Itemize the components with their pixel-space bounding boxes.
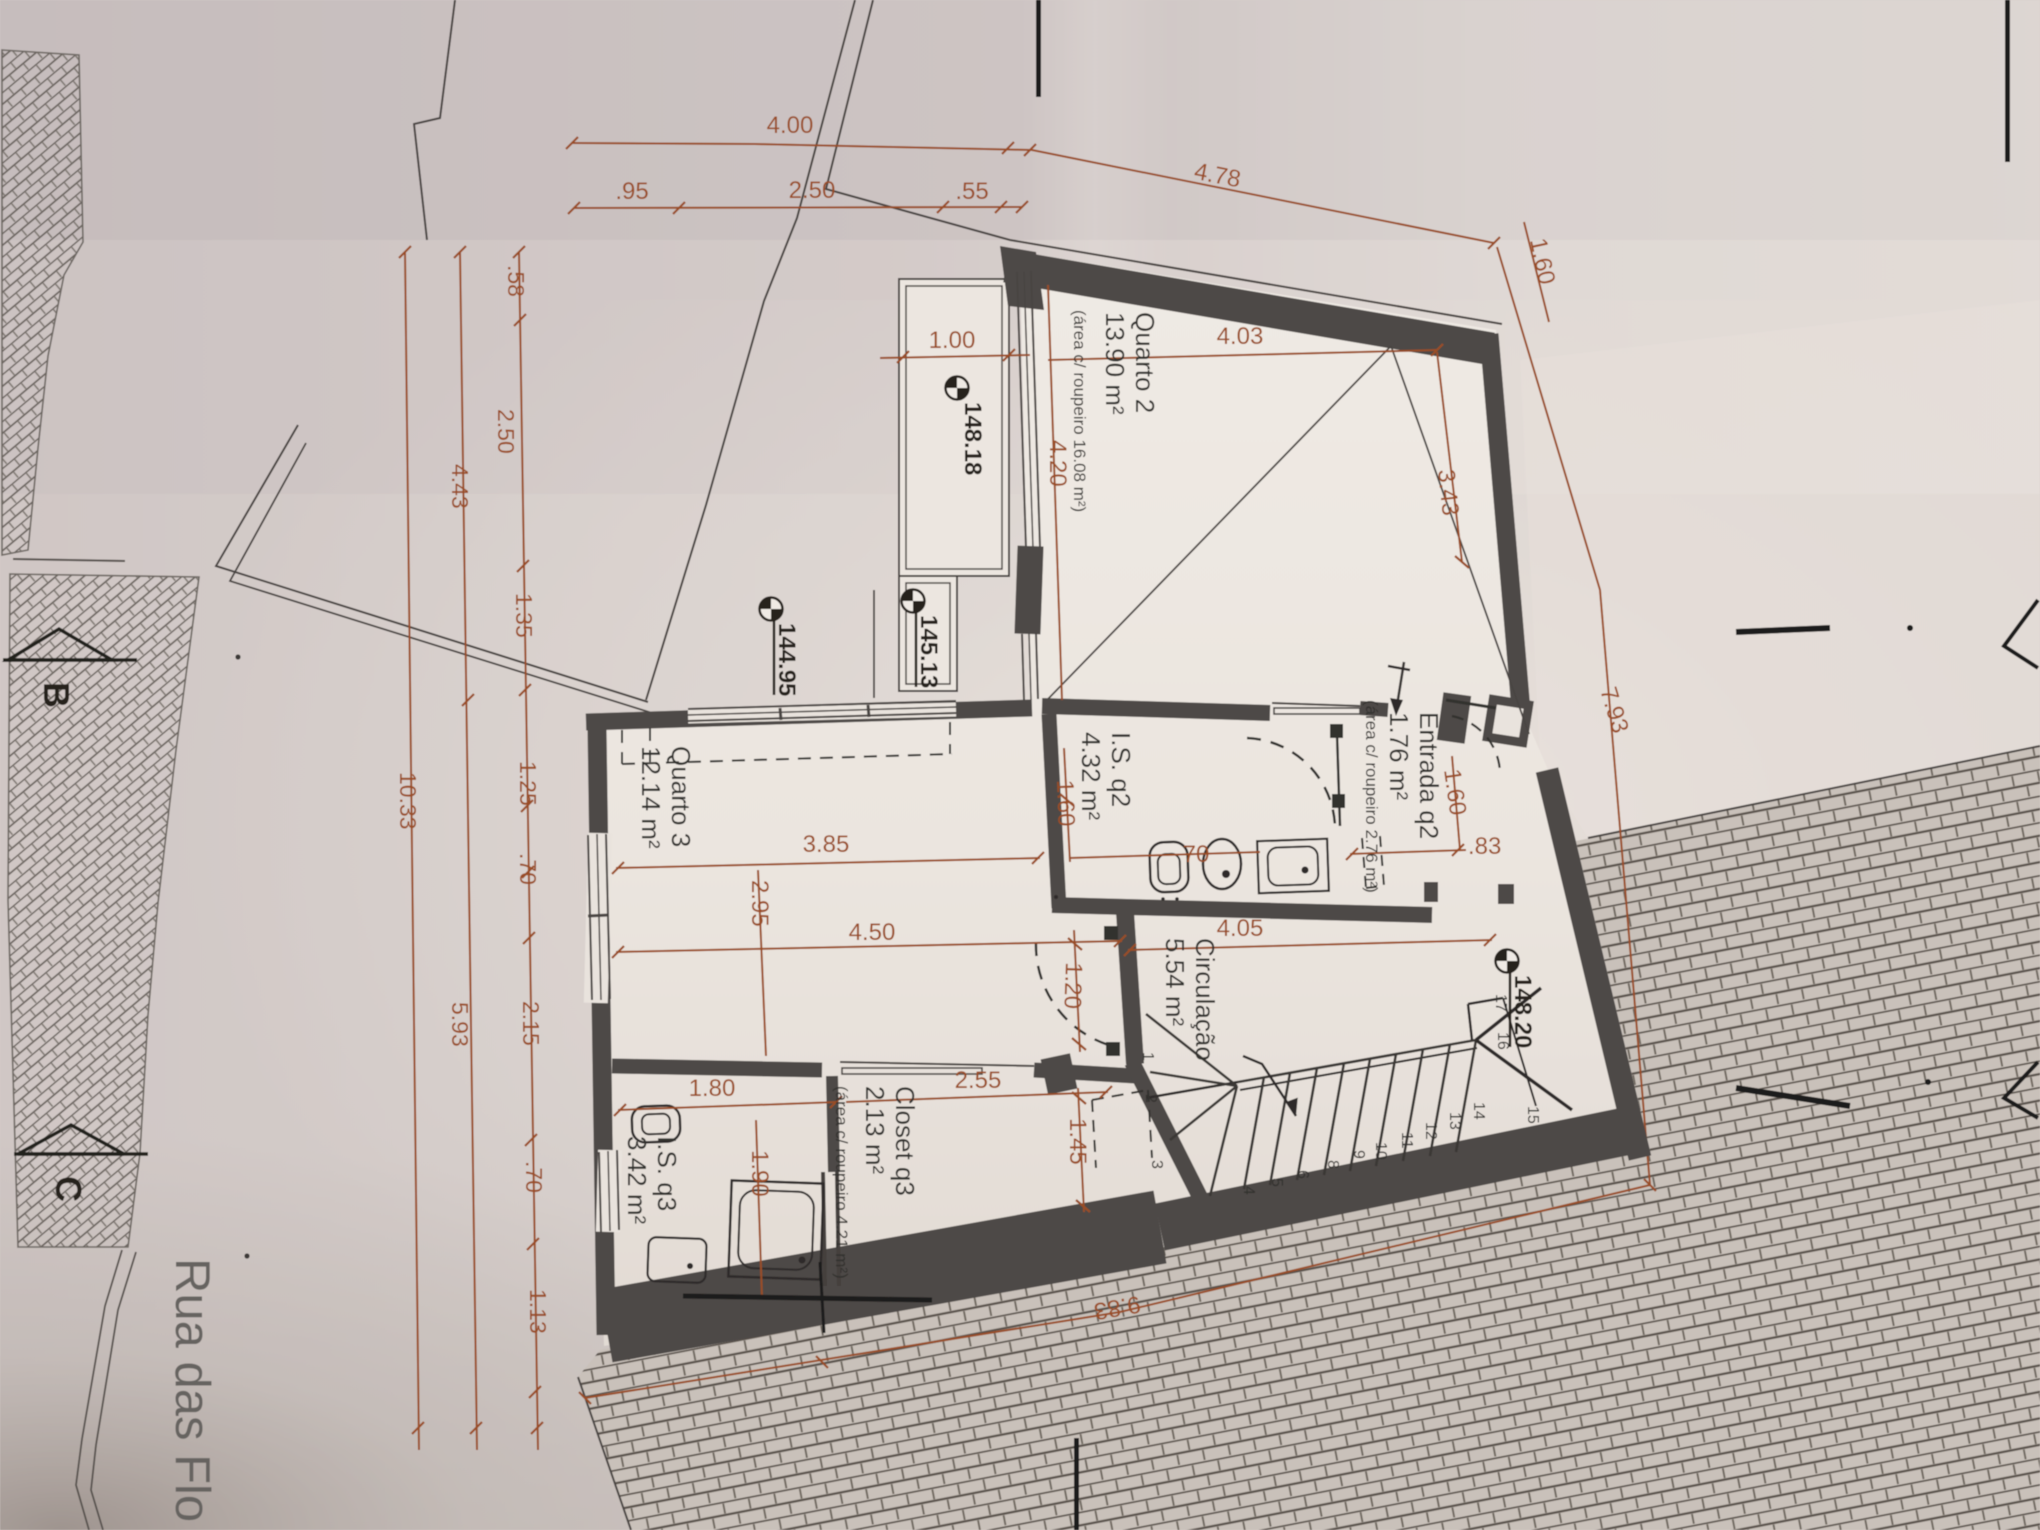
svg-text:148.18: 148.18 [959, 402, 986, 475]
svg-text:(área c/ roupeiro 2.76 m²): (área c/ roupeiro 2.76 m²) [1362, 700, 1381, 893]
svg-text:4.32 m²: 4.32 m² [1076, 732, 1106, 820]
svg-text:1.00: 1.00 [929, 327, 976, 354]
svg-text:1.45: 1.45 [1064, 1118, 1091, 1165]
svg-text:13: 13 [1446, 1112, 1463, 1130]
svg-text:4: 4 [1240, 1186, 1257, 1195]
svg-text:10.33: 10.33 [395, 772, 421, 830]
svg-text:Entrada q2: Entrada q2 [1414, 712, 1444, 839]
svg-text:2.15: 2.15 [518, 1001, 544, 1046]
svg-text:2.95: 2.95 [746, 880, 773, 927]
svg-text:3.42 m²: 3.42 m² [622, 1136, 652, 1224]
svg-text:70: 70 [1183, 841, 1210, 868]
svg-text:3.43: 3.43 [1432, 468, 1464, 517]
svg-text:.70: .70 [515, 853, 541, 885]
svg-text:3: 3 [1148, 1160, 1165, 1169]
svg-text:9: 9 [1350, 1150, 1367, 1159]
svg-text:2: 2 [1142, 1094, 1159, 1103]
svg-text:1.25: 1.25 [515, 761, 541, 806]
svg-text:10: 10 [1372, 1142, 1389, 1160]
svg-text:.58: .58 [503, 265, 529, 297]
svg-text:2.50: 2.50 [789, 177, 836, 204]
svg-text:15: 15 [1524, 1106, 1541, 1124]
svg-text:1: 1 [1139, 1052, 1156, 1061]
svg-text:4.00: 4.00 [767, 112, 814, 139]
svg-text:(área c/ roupeiro 16.08 m²): (área c/ roupeiro 16.08 m²) [1070, 310, 1089, 512]
svg-text:1.80: 1.80 [689, 1075, 736, 1102]
svg-text:145.13: 145.13 [915, 615, 942, 688]
svg-text:2.13 m²: 2.13 m² [860, 1086, 890, 1174]
svg-text:1.60: 1.60 [1051, 779, 1080, 827]
svg-text:12: 12 [1422, 1122, 1439, 1140]
svg-text:B: B [36, 682, 77, 708]
svg-text:6: 6 [1294, 1170, 1311, 1179]
svg-text:5.93: 5.93 [447, 1002, 473, 1047]
svg-text:2.50: 2.50 [493, 409, 519, 454]
svg-text:(área c/ roupeiro 4.21 m²): (área c/ roupeiro 4.21 m²) [832, 1086, 851, 1279]
svg-text:13.90 m²: 13.90 m² [1100, 312, 1130, 415]
svg-text:I.S. q3: I.S. q3 [652, 1136, 682, 1211]
svg-text:2.55: 2.55 [955, 1067, 1002, 1094]
svg-text:14: 14 [1470, 1102, 1487, 1120]
svg-text:12.14 m²: 12.14 m² [636, 746, 666, 849]
svg-text:11: 11 [1398, 1132, 1415, 1149]
svg-text:4.05: 4.05 [1217, 915, 1264, 942]
svg-text:.95: .95 [615, 178, 648, 205]
svg-text:1.35: 1.35 [511, 593, 537, 638]
svg-text:Closet q3: Closet q3 [890, 1086, 920, 1196]
svg-text:148.20: 148.20 [1509, 975, 1536, 1048]
svg-text:1.20: 1.20 [1058, 962, 1087, 1010]
svg-text:3.85: 3.85 [803, 831, 850, 858]
svg-text:Rua das Flo: Rua das Flo [165, 1258, 219, 1522]
svg-text:144.95: 144.95 [773, 623, 800, 696]
svg-text:17: 17 [1492, 994, 1509, 1012]
svg-text:8: 8 [1324, 1160, 1341, 1169]
svg-text:5: 5 [1268, 1178, 1285, 1187]
svg-text:.70: .70 [521, 1161, 547, 1193]
svg-text:Quarto 3: Quarto 3 [666, 746, 696, 847]
svg-text:1.90: 1.90 [746, 1150, 773, 1197]
svg-text:C: C [48, 1176, 89, 1202]
svg-text:4.20: 4.20 [1044, 440, 1071, 487]
svg-text:4.43: 4.43 [447, 464, 473, 509]
svg-text:4.03: 4.03 [1217, 323, 1264, 350]
svg-text:1.76 m²: 1.76 m² [1384, 712, 1414, 800]
svg-text:1.13: 1.13 [525, 1289, 551, 1334]
svg-text:I.S. q2: I.S. q2 [1106, 732, 1136, 807]
svg-text:.83: .83 [1468, 833, 1501, 860]
svg-text:.55: .55 [955, 178, 988, 205]
svg-text:4.50: 4.50 [849, 919, 896, 946]
svg-text:16: 16 [1494, 1032, 1511, 1050]
svg-text:Quarto 2: Quarto 2 [1130, 312, 1160, 413]
svg-text:Circulação: Circulação [1190, 938, 1220, 1061]
svg-text:5.54 m²: 5.54 m² [1160, 938, 1190, 1026]
